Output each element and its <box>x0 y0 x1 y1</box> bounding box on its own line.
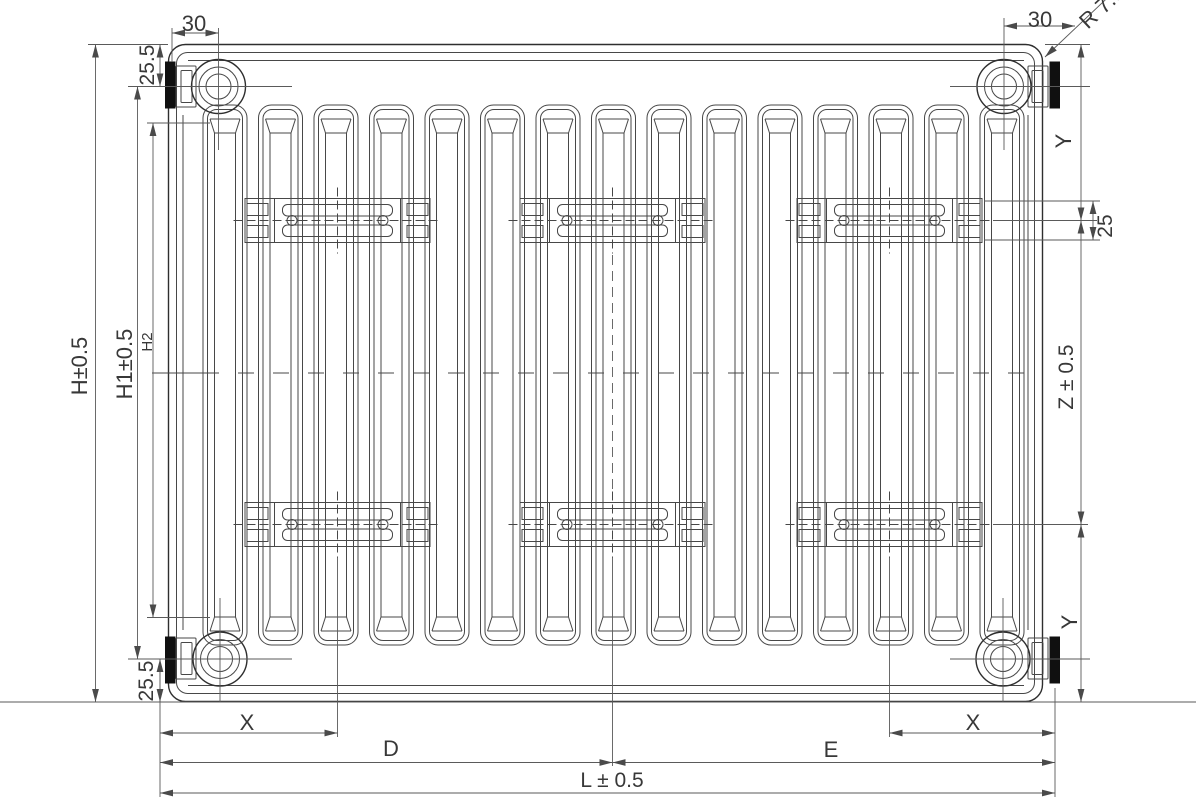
dim-label-x-left: X <box>240 710 255 735</box>
dim-label-30-right: 30 <box>1028 7 1052 32</box>
dim-label-l: L ± 0.5 <box>580 769 643 792</box>
drawing-linework <box>0 0 1196 797</box>
dim-label-25: 25 <box>1094 214 1117 237</box>
dim-label-offset-bottom: 25.5 <box>135 661 158 702</box>
dim-label-h: H±0.5 <box>67 337 92 396</box>
dim-label-y-bottom: Y <box>1057 614 1082 629</box>
dim-label-corner-radius: R 7.5 <box>1074 0 1130 34</box>
dim-label-y-top: Y <box>1051 133 1076 148</box>
technical-drawing: 30 30 R 7.5 25.5 H±0.5 H1±0.5 H2 Y 25 Z … <box>0 0 1200 800</box>
dim-label-e: E <box>824 737 839 762</box>
dim-label-z: Z ± 0.5 <box>1055 344 1078 409</box>
dim-label-x-right: X <box>966 710 981 735</box>
dim-label-30-left: 30 <box>182 11 206 36</box>
dim-label-d: D <box>383 736 399 761</box>
dim-label-offset-top: 25.5 <box>136 45 159 86</box>
radiator-drawing-canvas: 30 30 R 7.5 25.5 H±0.5 H1±0.5 H2 Y 25 Z … <box>0 0 1200 800</box>
dim-label-h1: H1±0.5 <box>112 329 137 400</box>
dim-label-h2: H2 <box>139 332 156 351</box>
